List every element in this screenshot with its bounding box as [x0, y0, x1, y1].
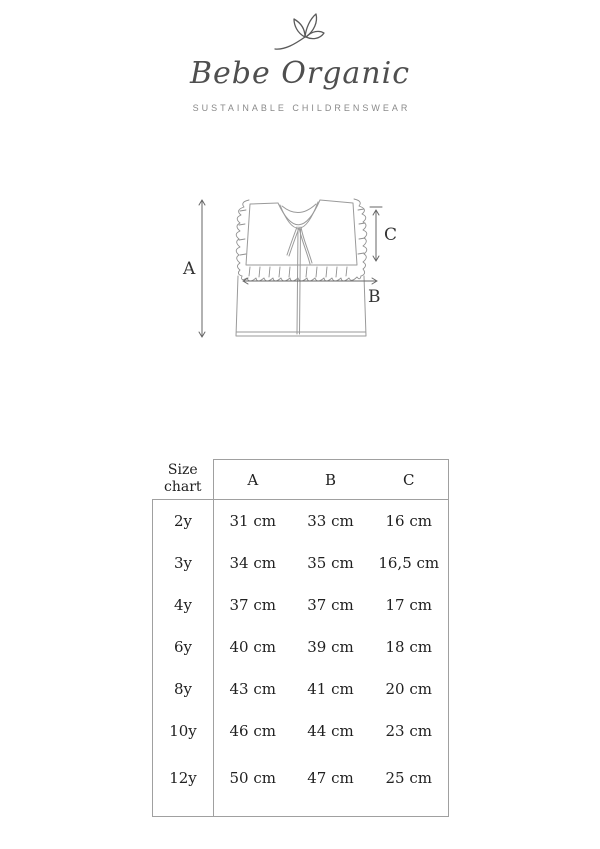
measurement-cell: 34 cm: [214, 542, 292, 584]
column-header-b: B: [292, 460, 370, 500]
column-header-a: A: [214, 460, 292, 500]
measurement-cell: 25 cm: [370, 752, 449, 817]
measurement-cell: 23 cm: [370, 710, 449, 752]
size-cell: 3y: [153, 542, 214, 584]
measurement-cell: 37 cm: [214, 584, 292, 626]
measurement-cell: 46 cm: [214, 710, 292, 752]
dimension-arrow-a: [199, 200, 205, 337]
size-chart-table: Size chart A B C 2y 31 cm 33 cm 16 cm 3y…: [152, 459, 449, 817]
size-cell: 2y: [153, 500, 214, 543]
measurement-cell: 43 cm: [214, 668, 292, 710]
measurement-cell: 47 cm: [292, 752, 370, 817]
dimension-label-b: B: [368, 287, 381, 307]
table-row: 8y 43 cm 41 cm 20 cm: [153, 668, 449, 710]
measurement-cell: 44 cm: [292, 710, 370, 752]
dimension-label-a: A: [182, 259, 196, 279]
size-cell: 8y: [153, 668, 214, 710]
measurement-cell: 16 cm: [370, 500, 449, 543]
size-guide-page: Bebe Organic SUSTAINABLE CHILDRENSWEAR: [0, 0, 600, 849]
size-cell: 10y: [153, 710, 214, 752]
table-row: 10y 46 cm 44 cm 23 cm: [153, 710, 449, 752]
garment-measurement-diagram: A B C: [170, 185, 410, 350]
dimension-arrow-c: [370, 207, 382, 261]
column-header-c: C: [370, 460, 449, 500]
measurement-cell: 18 cm: [370, 626, 449, 668]
measurement-cell: 31 cm: [214, 500, 292, 543]
table-header-row: Size chart A B C: [153, 460, 449, 500]
measurement-cell: 39 cm: [292, 626, 370, 668]
measurement-cell: 40 cm: [214, 626, 292, 668]
table-row: 2y 31 cm 33 cm 16 cm: [153, 500, 449, 543]
brand-tagline: SUSTAINABLE CHILDRENSWEAR: [0, 103, 600, 113]
measurement-cell: 37 cm: [292, 584, 370, 626]
table-row: 4y 37 cm 37 cm 17 cm: [153, 584, 449, 626]
measurement-cell: 41 cm: [292, 668, 370, 710]
measurement-cell: 20 cm: [370, 668, 449, 710]
size-cell: 6y: [153, 626, 214, 668]
sprig-leaf-icon: [272, 10, 328, 54]
measurement-cell: 16,5 cm: [370, 542, 449, 584]
measurement-cell: 50 cm: [214, 752, 292, 817]
measurement-cell: 35 cm: [292, 542, 370, 584]
size-chart-corner-label: Size chart: [153, 460, 214, 500]
dimension-label-c: C: [384, 225, 397, 245]
measurement-cell: 33 cm: [292, 500, 370, 543]
size-cell: 12y: [153, 752, 214, 817]
measurement-cell: 17 cm: [370, 584, 449, 626]
size-cell: 4y: [153, 584, 214, 626]
brand-name: Bebe Organic: [0, 56, 600, 91]
table-row: 3y 34 cm 35 cm 16,5 cm: [153, 542, 449, 584]
ruffle-trim: [236, 199, 367, 281]
table-row: 6y 40 cm 39 cm 18 cm: [153, 626, 449, 668]
table-row: 12y 50 cm 47 cm 25 cm: [153, 752, 449, 817]
size-chart: Size chart A B C 2y 31 cm 33 cm 16 cm 3y…: [152, 459, 449, 817]
